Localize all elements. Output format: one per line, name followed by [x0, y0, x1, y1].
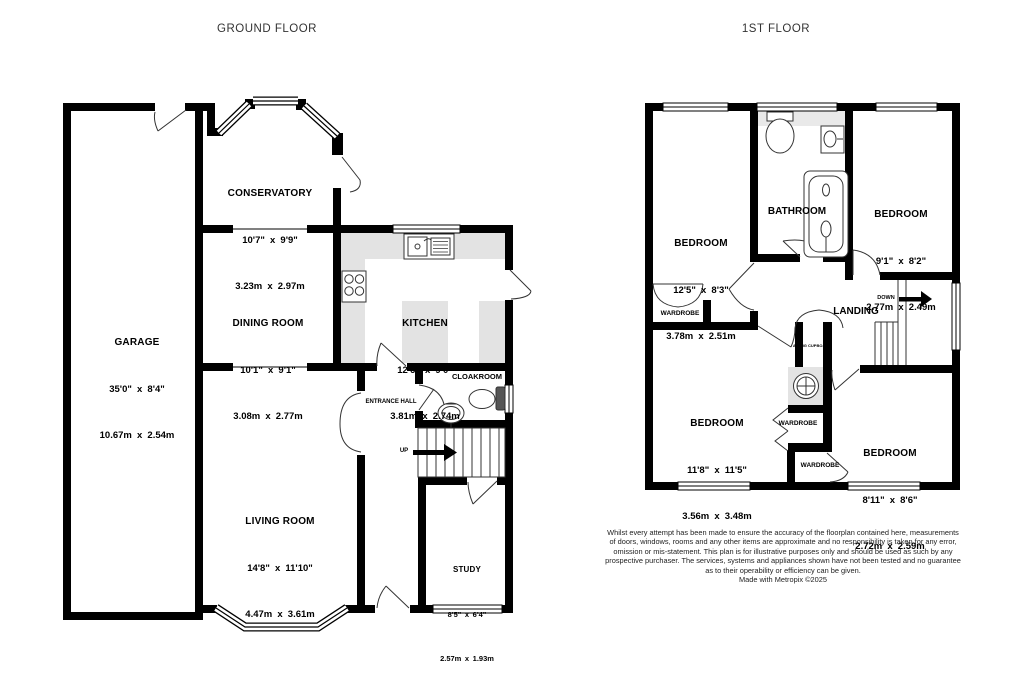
room-label-cloakroom: CLOAKROOM: [452, 372, 502, 381]
ground-floor-title: GROUND FLOOR: [217, 23, 317, 35]
disclaimer-line: Whilst every attempt has been made to en…: [568, 528, 998, 537]
disclaimer-line: of doors, windows, rooms and any other i…: [568, 537, 998, 546]
first-floor-title: 1ST FLOOR: [742, 23, 810, 35]
conservatory-bay-window: [219, 101, 337, 136]
room-label-wardrobe2: WARDROBE: [779, 420, 818, 427]
disclaimer-line: omission or mis-statement. This plan is …: [568, 547, 998, 556]
room-label-wardrobe1: WARDROBE: [661, 310, 700, 317]
room-label-entrance-hall: ENTRANCE HALL: [366, 399, 417, 405]
disclaimer-line: as to their operability or efficiency ca…: [568, 566, 998, 575]
bathroom-sink-icon: [821, 126, 844, 153]
room-label-bedroom1: BEDROOM 12'5" x 8'3" 3.78m x 2.51m: [666, 203, 735, 379]
water-cylinder-icon: [794, 374, 819, 399]
disclaimer-line: prospective purchaser. The services, sys…: [568, 556, 998, 565]
room-label-garage: GARAGE 35'0" x 8'4" 10.67m x 2.54m: [100, 302, 175, 478]
room-label-kitchen: KITCHEN 12'6" x 9'0" 3.81m x 2.74m: [390, 283, 459, 459]
room-label-airing-cupboard: AIRING CUPBOARD: [793, 343, 831, 348]
cloakroom-toilet-icon: [469, 387, 505, 410]
stairs-down-label: DOWN: [877, 295, 894, 301]
disclaimer-made-with: Made with Metropix ©2025: [568, 575, 998, 584]
room-label-bedroom2: BEDROOM 9'1" x 8'2" 2.77m x 2.49m: [866, 174, 935, 350]
stairs-up-label: UP: [400, 448, 408, 454]
room-label-living-room: LIVING ROOM 14'8" x 11'10" 4.47m x 3.61m: [245, 481, 314, 657]
room-label-wardrobe3: WARDROBE: [801, 462, 840, 469]
floorplan-page: GROUND FLOOR 1ST FLOOR GARAGE 35'0" x 8'…: [0, 0, 1024, 693]
disclaimer-text: Whilst every attempt has been made to en…: [568, 528, 998, 584]
bathroom-toilet-icon: [766, 112, 794, 153]
room-label-study: STUDY 8'5" x 6'4" 2.57m x 1.93m: [440, 530, 494, 693]
stove-icon: [342, 271, 366, 302]
kitchen-sink-icon: [404, 234, 454, 259]
room-label-dining-room: DINING ROOM 10'1" x 9'1" 3.08m x 2.77m: [232, 283, 303, 459]
room-label-landing: LANDING: [833, 306, 879, 317]
room-label-bathroom: BATHROOM: [768, 206, 826, 217]
